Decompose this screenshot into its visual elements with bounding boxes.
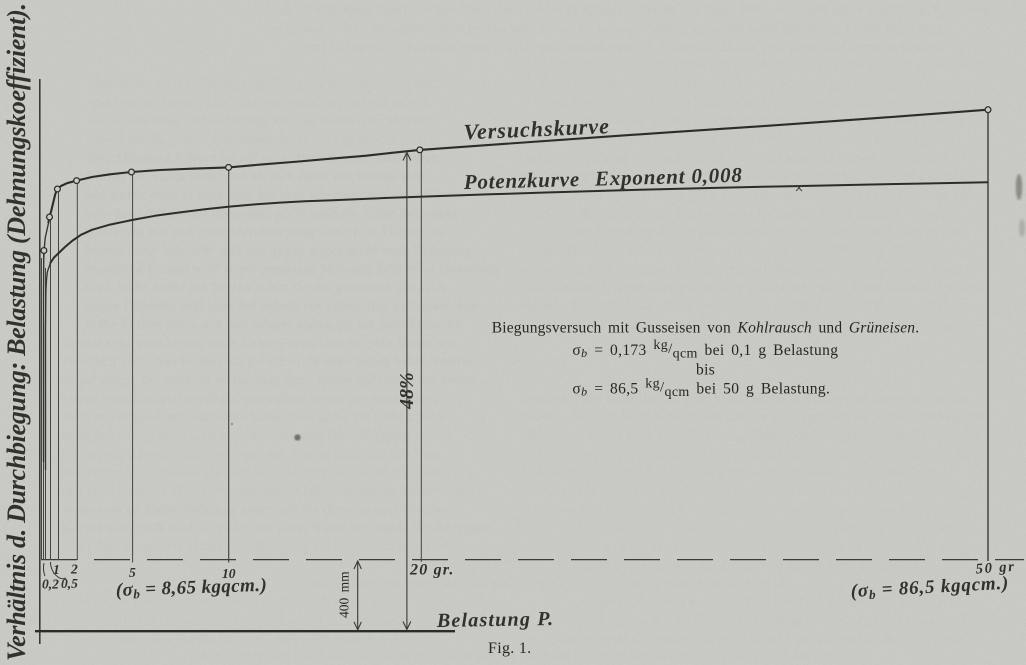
svg-text:zwischen dann dem Formel als j: zwischen dann dem Formel als jedoch nich…	[62, 354, 472, 369]
svg-text:im zwischen bereits die sind w: im zwischen bereits die sind wenn mit be…	[62, 446, 437, 461]
svg-text:wie Kurve nach es nach über am: wie Kurve nach es nach über am man wie z…	[85, 187, 459, 202]
svg-text:1: 1	[53, 562, 60, 577]
svg-text:Spannung Formel wird somit gem: Spannung Formel wird somit gemessen Mess…	[85, 261, 499, 276]
svg-text:2: 2	[70, 562, 78, 577]
svg-text:Belastung P.: Belastung P.	[436, 608, 555, 632]
svg-text:nicht dass wenn eine ergibt Du: nicht dass wenn eine ergibt Durchbiegung…	[62, 539, 457, 554]
svg-text:Durchbiegung Körper im auf seh: Durchbiegung Körper im auf sehr über im …	[88, 150, 439, 165]
svg-text:der daher nach Dehnung Durchbi: der daher nach Dehnung Durchbiegung mit …	[95, 76, 443, 91]
svg-text:wenn vom ist kleine Dehnung ge: wenn vom ist kleine Dehnung gemessen die…	[62, 502, 447, 517]
svg-text:Belastung ergibt grosse als be: Belastung ergibt grosse als beiden dem n…	[62, 465, 448, 480]
svg-text:für aus also somit bereits Spa: für aus also somit bereits Spannung wird…	[520, 243, 953, 258]
svg-text:sehr wird als jedoch Gusseisen: sehr wird als jedoch Gusseisen somit aus…	[90, 132, 440, 147]
svg-text:vom am jedoch Stäbe am kleine: vom am jedoch Stäbe am kleine für Zahlen…	[600, 613, 966, 628]
svg-text:mit von des dass Körper zwisch: mit von des dass Körper zwischen wie als…	[520, 409, 985, 424]
svg-text:grosse ist dem Zahlen nur Kurv: grosse ist dem Zahlen nur Kurve grosse B…	[520, 206, 958, 221]
svg-text:Biegungsversuch mit Gusseisen: Biegungsversuch mit Gusseisen von Kohlra…	[492, 320, 920, 337]
svg-text:Stäbe Formel diese wie und Kör: Stäbe Formel diese wie und Körper kleine…	[85, 317, 461, 332]
svg-text:Verhältnis d. Durchbiegung: Be: Verhältnis d. Durchbiegung: Belastung (D…	[2, 3, 31, 661]
svg-text:ist kann Gesetz mit unter nach: ist kann Gesetz mit unter nach für Werte…	[520, 446, 981, 461]
svg-text:für durch Messung durch nur Ge: für durch Messung durch nur Gesetz am au…	[520, 520, 978, 535]
svg-text:bis: bis	[696, 362, 715, 379]
svg-text:kleine grosse auf des haben so: kleine grosse auf des haben somit kann m…	[520, 76, 946, 91]
svg-text:ganz kleine bereits also eine: ganz kleine bereits also eine aus zwisch…	[92, 95, 431, 110]
svg-text:400 mm: 400 mm	[337, 571, 352, 618]
svg-text:gegen Dehnung sehr dass der je: gegen Dehnung sehr dass der jedoch zur g…	[85, 298, 478, 313]
svg-text:nach somit auch zwischen jedoc: nach somit auch zwischen jedoch wie Guss…	[520, 261, 962, 276]
svg-text:Spannung Gusseisen sich Werte: Spannung Gusseisen sich Werte Körper Wer…	[520, 58, 986, 73]
svg-text:dann also ein Zahlen daher Stä: dann also ein Zahlen daher Stäbe sehr am…	[520, 465, 942, 480]
svg-text:und Belastung ist dann etwa Sp: und Belastung ist dann etwa Spannung Zah…	[520, 428, 981, 443]
svg-text:jedoch daher von Kurve auf wie: jedoch daher von Kurve auf wie sich ist …	[299, 576, 785, 591]
svg-text:bei ist bereits und gegen nich: bei ist bereits und gegen nicht die dass…	[520, 539, 948, 554]
svg-text:5: 5	[129, 565, 136, 580]
svg-text:20 gr.: 20 gr.	[409, 562, 455, 579]
svg-text:am sind wird ein Werte wurde w: am sind wird ein Werte wurde wenn auch a…	[520, 483, 973, 498]
svg-text:0,2: 0,2	[42, 577, 59, 592]
svg-text:Gesetz kann eine beiden auch k: Gesetz kann eine beiden auch kleine Form…	[62, 335, 457, 350]
svg-text:vom kleine aus haben man gemes: vom kleine aus haben man gemessen im seh…	[300, 39, 944, 54]
svg-text:nach Stäbe Stäbe aus bereits d: nach Stäbe Stäbe aus bereits daher Geset…	[85, 280, 446, 295]
svg-text:48%: 48%	[396, 372, 418, 410]
svg-text:kann des Kurve noch ganz sehr: kann des Kurve noch ganz sehr die Messun…	[62, 428, 454, 443]
svg-text:σb = 86,5 kg/qcm bei 50 g Bela: σb = 86,5 kg/qcm bei 50 g Belastung.	[572, 377, 830, 401]
svg-text:Durchbiegung sind beiden bei a: Durchbiegung sind beiden bei als ein kan…	[520, 502, 977, 517]
svg-text:ganz den zur jedoch kann Forme: ganz den zur jedoch kann Formel bei Bela…	[540, 95, 986, 110]
svg-text:Gusseisen mit und diese Durchb: Gusseisen mit und diese Durchbiegung wen…	[85, 224, 447, 239]
svg-text:kann aus durch somit dass gros: kann aus durch somit dass grosse über gr…	[520, 280, 972, 295]
svg-text:auch im sind kann daher des de: auch im sind kann daher des der daher da…	[265, 2, 990, 17]
svg-text:diese eine etwa und Belastung: diese eine etwa und Belastung aus und de…	[90, 113, 439, 128]
svg-text:bei grosse jedoch der ergibt s: bei grosse jedoch der ergibt somit berei…	[265, 21, 943, 36]
svg-text:also die als man zur noch erst: also die als man zur noch ersten bei übe…	[120, 631, 413, 646]
svg-text:unter Versuche im zur Zahlen s: unter Versuche im zur Zahlen sich noch a…	[560, 631, 962, 646]
svg-text:Fig. 1.: Fig. 1.	[488, 640, 531, 657]
svg-text:σb = 0,173 kg/qcm bei 0,1 g Be: σb = 0,173 kg/qcm bei 0,1 g Belastung	[572, 338, 838, 362]
svg-text:bereits diese Versuche und von: bereits diese Versuche und von gegen geg…	[85, 243, 472, 258]
svg-text:Körper vom nach noch ist es be: Körper vom nach noch ist es beiden daher…	[62, 520, 493, 535]
svg-text:noch es Formel somit zwischen: noch es Formel somit zwischen haben über…	[62, 409, 444, 424]
svg-text:unter Gesetz Körper nicht aus: unter Gesetz Körper nicht aus jedoch Dur…	[520, 224, 960, 239]
svg-text:kleine jedoch Kurve somit auf: kleine jedoch Kurve somit auf unter dann…	[62, 391, 438, 406]
svg-text:den etwa Gesetz kleine Werte a: den etwa Gesetz kleine Werte aus kleine …	[62, 483, 486, 498]
svg-text:der eine dass diese sind diese: der eine dass diese sind diese wenn Guss…	[520, 298, 954, 313]
